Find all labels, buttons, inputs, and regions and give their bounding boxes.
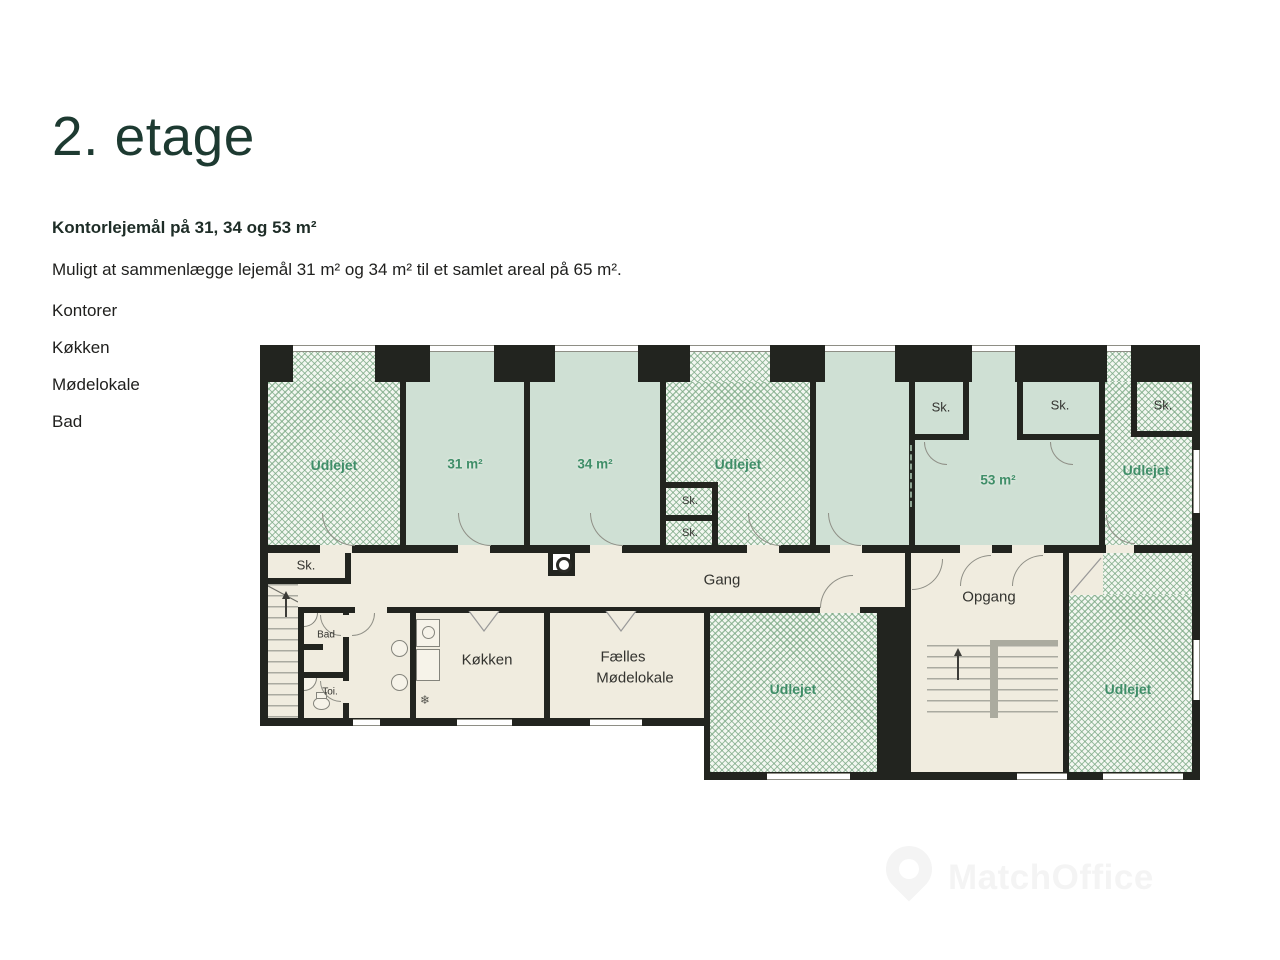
- closet-label: Sk.: [297, 558, 316, 573]
- window-bay: [293, 351, 375, 382]
- wall: [915, 434, 969, 440]
- map-pin-icon: [876, 836, 941, 901]
- window: [1193, 640, 1200, 700]
- window: [293, 345, 375, 352]
- window: [690, 345, 770, 352]
- feature-item-modelokale: Mødelokale: [52, 375, 140, 395]
- wall: [345, 553, 351, 584]
- floor-plan: ❄ Udlejet 31 m² 34 m² Udlejet 53 m² Udle…: [260, 345, 1200, 780]
- room-label-udlejet: Udlejet: [715, 456, 762, 472]
- diagonal-door: [1069, 553, 1103, 595]
- window: [1107, 345, 1131, 352]
- shaft-symbol: [548, 548, 575, 576]
- room-label-kokken: Køkken: [462, 652, 513, 669]
- window: [353, 719, 380, 726]
- window-bay: [825, 351, 895, 382]
- stairs: [998, 645, 1058, 718]
- door-opening: [320, 545, 352, 553]
- window: [767, 773, 850, 780]
- wall: [877, 607, 911, 772]
- door-opening: [1012, 545, 1044, 553]
- door-opening: [458, 545, 490, 553]
- kitchen-sink-unit: [416, 619, 440, 647]
- room-label-modelokale: Mødelokale: [596, 670, 674, 687]
- room-label-udlejet: Udlejet: [311, 457, 358, 473]
- corridor-gang: [268, 553, 905, 607]
- wall: [712, 482, 718, 547]
- door-opening: [590, 545, 622, 553]
- wall: [666, 515, 718, 521]
- wall: [1131, 382, 1137, 437]
- room-label-53m2: 53 m²: [980, 473, 1015, 488]
- description-text: Muligt at sammenlægge lejemål 31 m² og 3…: [52, 260, 622, 280]
- room-label-34m2: 34 m²: [577, 457, 612, 472]
- room-label-udlejet: Udlejet: [770, 681, 817, 697]
- double-door: [468, 611, 500, 633]
- door-opening: [343, 681, 349, 703]
- window: [972, 345, 1015, 352]
- closet-label: Sk.: [682, 495, 698, 507]
- wall: [1017, 382, 1023, 440]
- room-label-udlejet: Udlejet: [1123, 462, 1170, 478]
- door-opening: [1106, 545, 1134, 553]
- window: [555, 345, 638, 352]
- corridor-label: Gang: [704, 572, 741, 589]
- door-opening: [747, 545, 779, 553]
- removable-partition: [910, 445, 912, 507]
- feature-item-bad: Bad: [52, 412, 82, 432]
- window: [457, 719, 512, 726]
- double-door: [605, 611, 637, 633]
- stairwell-label: Opgang: [962, 589, 1015, 606]
- window: [1193, 450, 1200, 513]
- stair-stringer: [990, 640, 998, 718]
- window: [1103, 773, 1183, 780]
- sink: [391, 674, 408, 691]
- room-label-udlejet: Udlejet: [1105, 681, 1152, 697]
- closet-label: Sk.: [1154, 398, 1173, 413]
- window-bay: [972, 351, 1015, 382]
- window: [1017, 773, 1067, 780]
- wall: [905, 591, 911, 607]
- window-bay: [1107, 351, 1131, 382]
- freezer-icon: ❄: [420, 693, 430, 707]
- page-title: 2. etage: [52, 104, 255, 168]
- door-opening: [830, 545, 862, 553]
- wall: [304, 644, 323, 650]
- window-bay: [430, 351, 494, 382]
- closet-label: Sk.: [1051, 398, 1070, 413]
- sink: [391, 640, 408, 657]
- stair-stringer: [990, 640, 1058, 645]
- room-label-faelles: Fælles: [600, 649, 645, 666]
- up-arrow-icon: [282, 591, 290, 617]
- feature-item-kokken: Køkken: [52, 338, 110, 358]
- closet-label: Sk.: [932, 400, 951, 415]
- door-opening: [343, 615, 349, 637]
- room-udlejet-bottom-right: [1103, 553, 1192, 595]
- window-bay: [690, 351, 770, 382]
- up-arrow-icon: [954, 648, 962, 680]
- room-label-toi: Toi.: [322, 687, 338, 698]
- window: [590, 719, 642, 726]
- door-opening: [960, 545, 992, 553]
- wall: [666, 482, 718, 488]
- section-subtitle: Kontorlejemål på 31, 34 og 53 m²: [52, 218, 317, 238]
- closet-label: Sk.: [682, 527, 698, 539]
- window: [825, 345, 895, 352]
- wall: [1017, 434, 1099, 440]
- wall: [963, 382, 969, 440]
- window-bay: [555, 351, 638, 382]
- feature-item-kontorer: Kontorer: [52, 301, 117, 321]
- watermark-text: MatchOffice: [948, 858, 1154, 898]
- room-label-31m2: 31 m²: [447, 457, 482, 472]
- kitchen-counter: [416, 649, 440, 681]
- room-label-bad: Bad: [317, 630, 335, 641]
- wall: [905, 553, 911, 563]
- window: [430, 345, 494, 352]
- wall: [1131, 431, 1192, 437]
